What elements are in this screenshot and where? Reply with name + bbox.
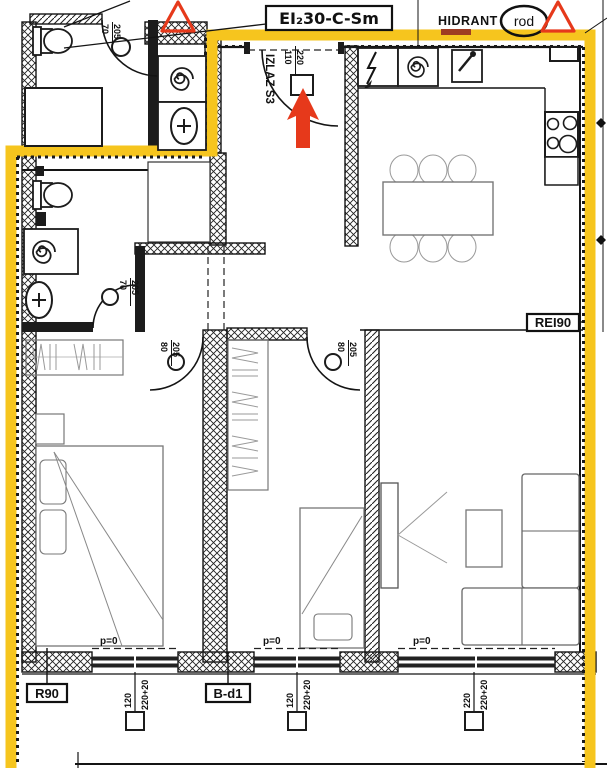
- washing-machine: [158, 56, 206, 102]
- bedrooms-top-wall: [227, 328, 307, 340]
- floor-plan: 70 205 70 205: [0, 0, 607, 768]
- pillow: [40, 460, 66, 504]
- door-height: 220: [295, 50, 305, 65]
- hanging-clothes: [232, 348, 258, 376]
- door-closer-icon: [325, 354, 341, 370]
- faucet-head: [470, 51, 476, 57]
- door-height: 205: [348, 342, 358, 357]
- shaft-wall: [210, 153, 226, 245]
- electrical-panel: [358, 48, 398, 86]
- kitchen-wall: [345, 46, 358, 246]
- outer-walls: [22, 14, 607, 768]
- bed: [36, 446, 163, 646]
- door-height: 205: [171, 342, 181, 357]
- living-room: [381, 474, 579, 645]
- window-height: 220+20: [140, 680, 150, 710]
- bottom-annotations: p=0 p=0 p=0 R90 B-d1 120 220+20 120 220+…: [27, 636, 489, 730]
- wardrobe: [228, 340, 268, 490]
- bed: [300, 508, 364, 648]
- dining-table: [383, 182, 493, 235]
- pillow: [40, 510, 66, 554]
- window-dimension: 120 220+20: [123, 672, 150, 730]
- door-height: 205: [112, 24, 122, 39]
- washing-machine: [398, 48, 438, 86]
- coffee-table: [466, 510, 502, 567]
- exit-arrow-icon: [287, 88, 319, 148]
- bedroom-2: 80 205: [228, 337, 364, 648]
- bedroom-divider-wall: [203, 330, 227, 662]
- door-closer-icon: [102, 289, 118, 305]
- rei90-label: REI90: [535, 315, 571, 330]
- facade-line: [585, 18, 607, 33]
- bottom-wall: [22, 652, 92, 672]
- exit-label: IZLAZ S3: [263, 54, 275, 104]
- parapet-label: p=0: [263, 636, 281, 647]
- door-jamb: [244, 42, 250, 54]
- window-width: 120: [123, 693, 133, 708]
- bedroom-1: 80 205: [26, 337, 203, 646]
- washing-machine: [24, 229, 78, 274]
- chair: [448, 232, 476, 262]
- parapet-label: p=0: [100, 636, 118, 647]
- rod-label: rod: [514, 13, 534, 29]
- counter: [545, 157, 578, 185]
- cabinet: [550, 47, 578, 61]
- chair: [390, 155, 418, 185]
- kitchen-sink: [452, 50, 482, 82]
- chair: [390, 232, 418, 262]
- wall-stub: [36, 212, 46, 226]
- windows: [92, 649, 555, 671]
- window-width: 220: [462, 693, 472, 708]
- living-divider-wall: [365, 330, 379, 662]
- window-dimension: 220 220+20: [462, 672, 489, 730]
- bd1-label: B-d1: [214, 686, 243, 701]
- tv: [381, 483, 398, 588]
- door-width: 70: [118, 280, 128, 290]
- wall-stub: [36, 166, 44, 176]
- chair: [419, 155, 447, 185]
- chair: [419, 232, 447, 262]
- r90-label: R90: [35, 686, 59, 701]
- dining-area: [383, 155, 493, 262]
- dim-terminal: [288, 712, 306, 730]
- parapet-label: p=0: [413, 636, 431, 647]
- door-height: 205: [130, 280, 140, 295]
- window-width: 120: [285, 693, 295, 708]
- upper-unit-top-wall: [30, 14, 102, 24]
- wardrobe: [26, 340, 123, 375]
- closet: [148, 162, 210, 242]
- bathroom-bottom-wall: [22, 322, 93, 332]
- tv-view-line: [398, 492, 447, 535]
- fire-door-rating-label: EI₂30-C-Sm: [279, 9, 379, 28]
- facade-tick: [596, 235, 606, 245]
- exit-assembly: IZLAZ S3 110 220: [262, 46, 338, 148]
- hydrant-mark: [441, 29, 471, 35]
- door-width: 110: [283, 50, 293, 65]
- window-height: 220+20: [302, 680, 312, 710]
- nightstand: [36, 414, 64, 444]
- window-dimension: 120 220+20: [285, 672, 312, 730]
- shower-icon: [25, 88, 102, 146]
- dim-terminal: [126, 712, 144, 730]
- tv-view-line: [398, 535, 447, 563]
- dim-terminal: [465, 712, 483, 730]
- door-width: 70: [100, 24, 110, 34]
- chair: [448, 155, 476, 185]
- window-height: 220+20: [479, 680, 489, 710]
- hydrant-label: HIDRANT: [438, 14, 498, 28]
- top-annotations: EI₂30-C-Sm HIDRANT rod REI90: [64, 0, 607, 332]
- door-width: 80: [336, 342, 346, 352]
- floor-plan-canvas: 70 205 70 205: [0, 0, 607, 768]
- upper-unit-right-wall: [148, 20, 158, 152]
- stove-icon: [545, 112, 578, 157]
- door-width: 80: [159, 342, 169, 352]
- hanging-clothes: [232, 392, 258, 420]
- hanging-clothes: [232, 436, 258, 476]
- facade-tick: [596, 118, 606, 128]
- pillow: [314, 614, 352, 640]
- shaft-bottom-wall: [135, 243, 265, 254]
